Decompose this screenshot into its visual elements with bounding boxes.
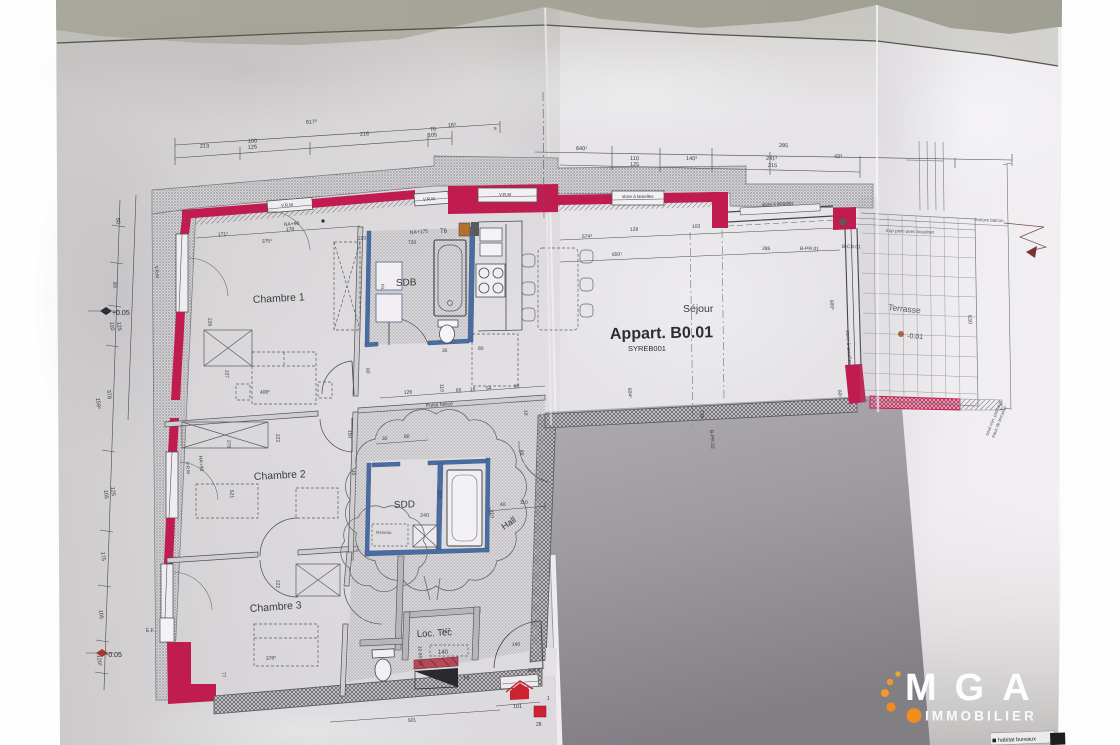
svg-text:IMMOBILIER: IMMOBILIER: [925, 709, 1037, 724]
svg-text:600¹: 600¹: [828, 300, 835, 311]
svg-text:888.8: 888.8: [528, 667, 541, 674]
svg-text:216: 216: [360, 131, 370, 138]
svg-text:30: 30: [382, 436, 388, 442]
svg-text:110: 110: [438, 384, 445, 393]
svg-text:408¹: 408¹: [260, 389, 271, 396]
svg-text:15: 15: [350, 470, 356, 476]
svg-text:90: 90: [514, 384, 520, 390]
svg-text:285: 285: [762, 246, 771, 252]
svg-text:V.R.M: V.R.M: [281, 202, 294, 208]
svg-text:101: 101: [513, 704, 522, 710]
svg-text:80: 80: [478, 346, 484, 352]
svg-text:store à lamelles: store à lamelles: [622, 194, 654, 199]
svg-text:50: 50: [114, 218, 121, 225]
svg-text:105: 105: [97, 610, 104, 620]
svg-text:43³: 43³: [834, 154, 842, 160]
svg-text:378: 378: [105, 390, 112, 400]
svg-text:B-CB.01: B-CB.01: [842, 244, 861, 250]
svg-text:110: 110: [108, 322, 115, 331]
svg-text:+0.05: +0.05: [112, 310, 130, 317]
svg-text:-0.01: -0.01: [907, 333, 924, 341]
svg-text:Appart. B0.01: Appart. B0.01: [610, 324, 714, 343]
svg-text:T8: T8: [463, 676, 469, 682]
svg-text:378⁵: 378⁵: [266, 655, 277, 662]
svg-text:(90): (90): [436, 490, 443, 500]
svg-text:E.F.: E.F.: [146, 628, 155, 634]
svg-text:10: 10: [522, 410, 528, 416]
svg-text:80: 80: [518, 450, 524, 456]
svg-text:150: 150: [346, 430, 353, 439]
svg-text:125: 125: [115, 322, 122, 332]
svg-text:60¹: 60¹: [836, 390, 843, 398]
svg-text:80: 80: [404, 434, 410, 440]
svg-text:126: 126: [404, 389, 413, 396]
svg-text:NA+175: NA+175: [410, 229, 429, 236]
svg-text:SYREB001: SYREB001: [628, 344, 666, 353]
svg-text:V.R.M: V.R.M: [154, 266, 160, 279]
svg-text:630: 630: [966, 315, 972, 324]
svg-text:159⁶: 159⁶: [94, 397, 102, 409]
svg-text:640¹: 640¹: [576, 146, 587, 152]
svg-text:110: 110: [520, 500, 528, 506]
svg-text:125: 125: [109, 487, 116, 497]
svg-text:16³: 16³: [448, 122, 457, 129]
svg-text:ML: ML: [380, 284, 385, 291]
svg-text:105: 105: [102, 490, 109, 500]
svg-text:220: 220: [358, 235, 367, 242]
svg-text:65: 65: [456, 388, 462, 394]
svg-text:28: 28: [536, 722, 542, 728]
svg-text:240: 240: [420, 513, 429, 519]
svg-text:140³: 140³: [686, 156, 697, 162]
svg-text:127: 127: [442, 628, 451, 634]
svg-text:105: 105: [428, 132, 438, 139]
svg-text:1: 1: [547, 696, 550, 702]
svg-text:521: 521: [228, 490, 235, 499]
svg-text:226: 226: [206, 318, 213, 327]
svg-text:375¹: 375¹: [262, 238, 273, 245]
svg-text:HA+90: HA+90: [197, 456, 204, 472]
svg-text:501: 501: [408, 717, 417, 724]
svg-text:36: 36: [442, 348, 448, 354]
svg-text:NA+90: NA+90: [284, 221, 300, 228]
svg-text:650¹: 650¹: [612, 252, 623, 258]
svg-text:90: 90: [364, 368, 370, 374]
svg-text:241³: 241³: [766, 156, 777, 162]
svg-text:222: 222: [274, 580, 281, 589]
svg-text:SDD: SDD: [394, 499, 415, 511]
svg-text:-0.05: -0.05: [106, 652, 122, 659]
svg-text:720: 720: [408, 240, 417, 246]
svg-text:Tenture balcon: Tenture balcon: [974, 217, 1004, 223]
svg-text:54: 54: [486, 386, 492, 392]
svg-text:40: 40: [500, 502, 506, 508]
svg-text:175: 175: [99, 552, 106, 562]
svg-text:SDB: SDB: [396, 277, 417, 289]
svg-text:140: 140: [512, 642, 521, 648]
svg-text:738: 738: [698, 410, 705, 419]
svg-text:276: 276: [225, 440, 232, 449]
svg-text:T6: T6: [440, 229, 448, 235]
svg-text:140: 140: [438, 650, 449, 656]
svg-text:604¹: 604¹: [626, 388, 633, 399]
svg-text:128: 128: [630, 227, 639, 233]
svg-text:Séjour: Séjour: [683, 303, 714, 315]
svg-text:V.R.M: V.R.M: [499, 192, 511, 197]
svg-text:617²: 617²: [306, 119, 318, 126]
svg-text:93: 93: [111, 282, 118, 289]
svg-text:213: 213: [200, 143, 210, 150]
svg-text:222: 222: [274, 434, 281, 443]
svg-text:MGA: MGA: [905, 667, 1048, 709]
svg-text:77: 77: [220, 672, 226, 678]
svg-text:125: 125: [248, 144, 258, 151]
svg-text:215: 215: [768, 163, 777, 169]
svg-text:Réseau: Réseau: [376, 530, 392, 535]
svg-text:171¹: 171¹: [218, 231, 229, 238]
svg-text:125: 125: [630, 162, 639, 168]
svg-text:227: 227: [223, 370, 230, 379]
svg-text:285: 285: [779, 143, 788, 149]
svg-text:V.R.M: V.R.M: [423, 196, 436, 202]
svg-text:103: 103: [692, 224, 701, 230]
svg-text:16: 16: [470, 387, 476, 393]
